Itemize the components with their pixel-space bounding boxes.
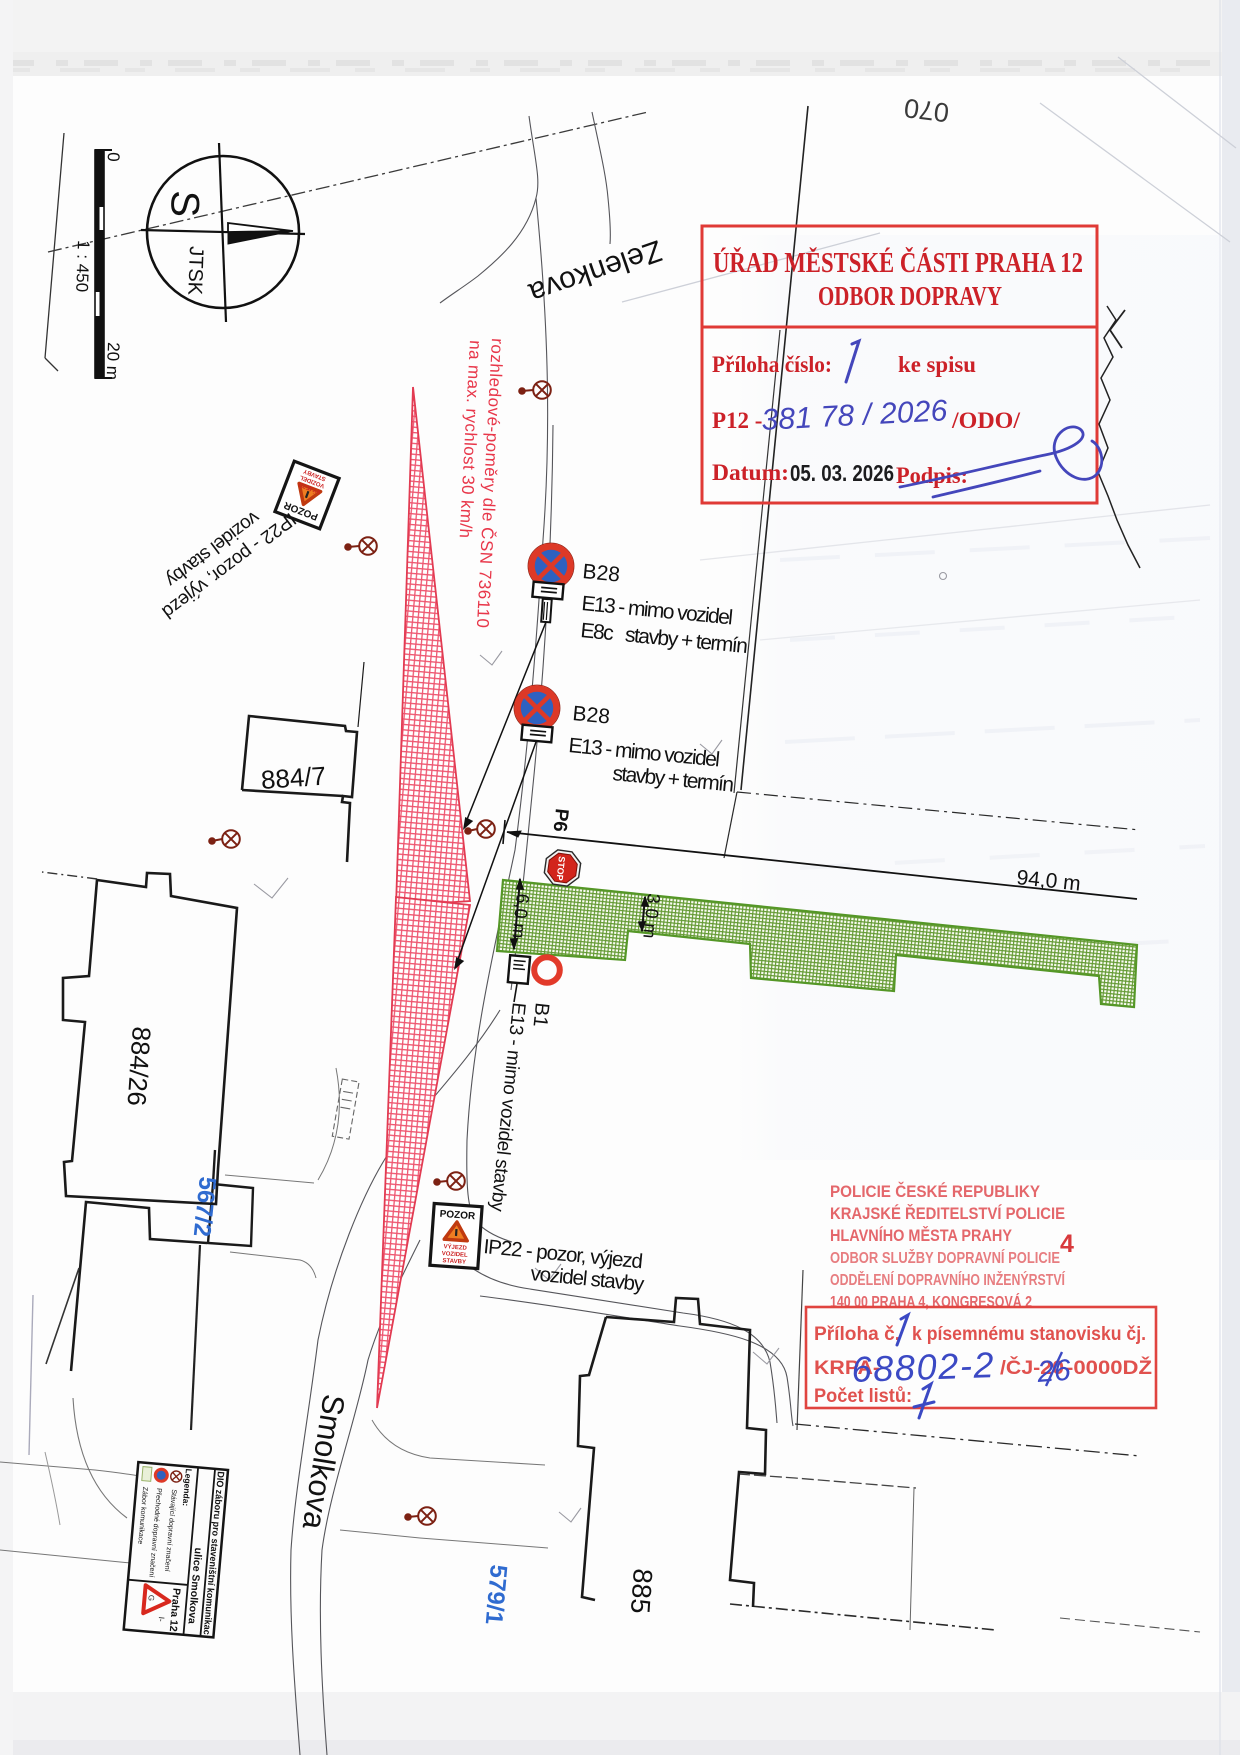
svg-text:Příloha č.: Příloha č. [814,1324,900,1345]
svg-text:0: 0 [104,152,123,162]
svg-text:-0000DŽ: -0000DŽ [1066,1357,1152,1379]
svg-text:k písemnému stanovisku čj.: k písemnému stanovisku čj. [912,1324,1146,1345]
svg-text:4: 4 [1060,1230,1074,1258]
svg-text:G: G [146,1594,156,1601]
svg-text:ke spisu: ke spisu [898,352,976,377]
svg-text:P12 -: P12 - [712,408,762,433]
svg-text:B28: B28 [582,560,621,586]
svg-text:579/1: 579/1 [480,1563,512,1625]
svg-text:884/26: 884/26 [121,1026,156,1107]
svg-text:884/7: 884/7 [260,761,327,795]
svg-text:Datum:: Datum: [712,460,789,485]
svg-text:B1: B1 [528,1001,552,1028]
svg-text:1 : 450: 1 : 450 [72,240,93,293]
svg-text:885: 885 [625,1568,658,1615]
svg-text:070: 070 [902,93,950,128]
svg-text:ODBOR DOPRAVY: ODBOR DOPRAVY [818,281,1002,311]
svg-text:140 00 PRAHA 4, KONGRESOVÁ 2: 140 00 PRAHA 4, KONGRESOVÁ 2 [830,1294,1032,1311]
svg-text:KRAJSKÉ ŘEDITELSTVÍ POLICIE: KRAJSKÉ ŘEDITELSTVÍ POLICIE [830,1204,1065,1223]
svg-text:05. 03. 2026: 05. 03. 2026 [790,460,894,486]
svg-text:HLAVNÍHO MĚSTA PRAHY: HLAVNÍHO MĚSTA PRAHY [830,1226,1013,1245]
svg-text:20 m: 20 m [103,342,123,380]
svg-text:/ODO/: /ODO/ [951,408,1021,433]
svg-text:ÚŘAD MĚSTSKÉ ČÁSTI PRAHA 12: ÚŘAD MĚSTSKÉ ČÁSTI PRAHA 12 [713,248,1083,279]
svg-text:S: S [162,190,207,218]
svg-text:JTSK: JTSK [183,246,207,296]
svg-text:ODDĚLENÍ DOPRAVNÍHO INŽENÝRSTV: ODDĚLENÍ DOPRAVNÍHO INŽENÝRSTVÍ [830,1271,1066,1289]
svg-text:P6: P6 [549,807,572,832]
svg-text:ODBOR SLUŽBY DOPRAVNÍ POLICIE: ODBOR SLUŽBY DOPRAVNÍ POLICIE [830,1249,1060,1267]
svg-text:POLICIE ČESKÉ REPUBLIKY: POLICIE ČESKÉ REPUBLIKY [830,1182,1041,1201]
svg-text:Příloha číslo:: Příloha číslo: [712,352,832,377]
svg-text:B28: B28 [572,702,611,728]
